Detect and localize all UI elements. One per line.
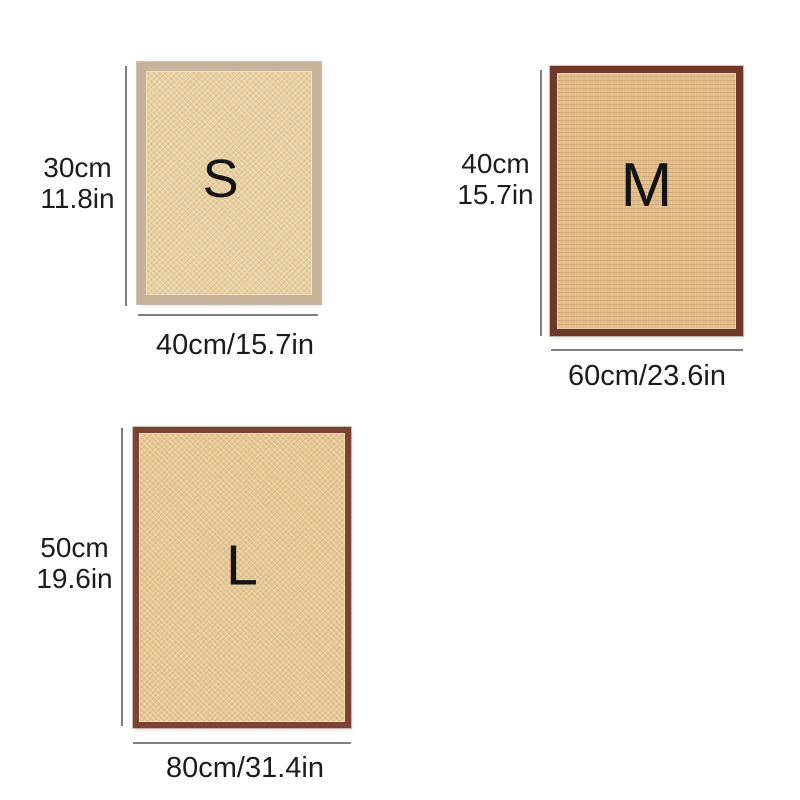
size-m-width-label: 60cm/23.6in: [547, 360, 747, 393]
size-s-height-dimension-line: [125, 66, 127, 306]
size-l-width-dimension-line: [133, 742, 351, 744]
mat-size-m: M: [550, 66, 743, 336]
mat-size-s-letter: S: [203, 152, 239, 206]
size-s-height-in: 11.8in: [30, 183, 125, 214]
size-l-height-label: 50cm 19.6in: [27, 532, 122, 594]
size-m-height-label: 40cm 15.7in: [448, 148, 543, 210]
size-m-height-in: 15.7in: [448, 179, 543, 210]
size-s-width-dimension-line: [138, 314, 318, 316]
mat-size-m-letter: M: [621, 155, 673, 217]
size-l-width-label: 80cm/31.4in: [145, 752, 345, 785]
mat-size-l: L: [133, 427, 351, 728]
mat-size-s-surface: S: [146, 71, 312, 295]
mat-size-l-letter: L: [226, 537, 258, 594]
size-chart-canvas: 30cm 11.8in S 40cm/15.7in 40cm 15.7in M …: [0, 0, 800, 800]
size-l-height-in: 19.6in: [27, 563, 122, 594]
size-m-height-cm: 40cm: [448, 148, 543, 179]
size-l-height-cm: 50cm: [27, 532, 122, 563]
size-s-height-cm: 30cm: [30, 152, 125, 183]
size-s-width-label: 40cm/15.7in: [135, 329, 335, 362]
mat-size-s: S: [137, 62, 321, 304]
size-s-height-label: 30cm 11.8in: [30, 152, 125, 214]
mat-size-m-surface: M: [557, 73, 736, 329]
size-m-width-dimension-line: [551, 349, 743, 351]
mat-size-l-surface: L: [139, 433, 345, 722]
